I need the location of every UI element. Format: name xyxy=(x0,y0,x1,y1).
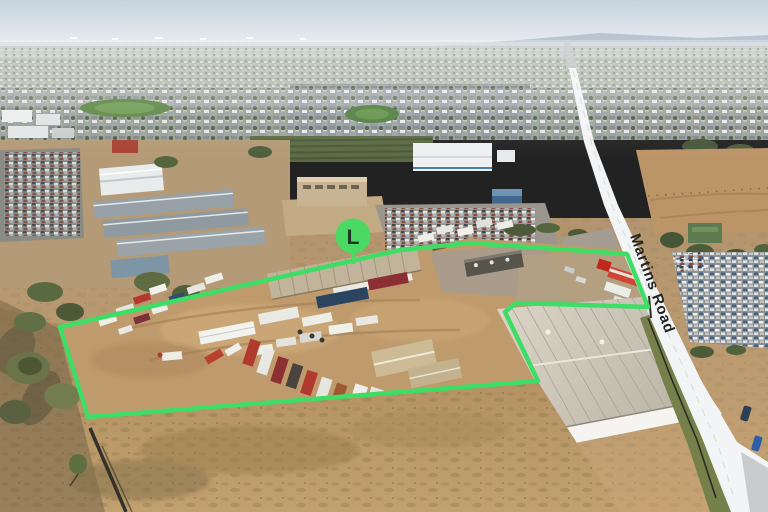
industrial-complex-left xyxy=(0,140,290,306)
lot-marker-letter: L xyxy=(347,226,360,249)
aerial-photo: L Martins Road xyxy=(0,0,768,512)
aerial-photo-scene: L Martins Road xyxy=(0,0,768,512)
atmospheric-haze xyxy=(0,40,768,160)
cleared-lot-right xyxy=(636,148,768,235)
